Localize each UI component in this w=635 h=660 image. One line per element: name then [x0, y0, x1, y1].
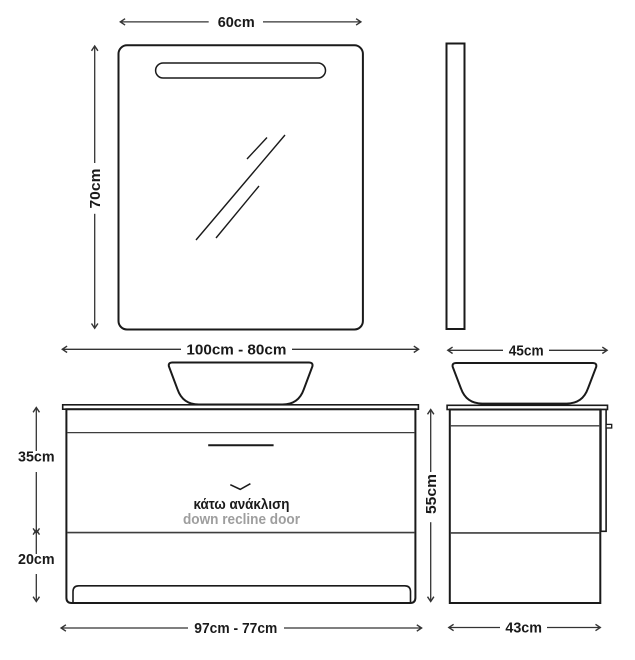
svg-text:100cm - 80cm: 100cm - 80cm	[186, 342, 286, 359]
svg-text:70cm: 70cm	[88, 168, 104, 208]
svg-text:55cm: 55cm	[424, 474, 440, 514]
svg-text:35cm: 35cm	[18, 450, 55, 466]
svg-text:43cm: 43cm	[505, 621, 542, 637]
svg-text:60cm: 60cm	[218, 15, 255, 31]
svg-text:20cm: 20cm	[18, 552, 55, 568]
svg-text:45cm: 45cm	[509, 344, 544, 360]
svg-text:97cm - 77cm: 97cm - 77cm	[194, 620, 277, 637]
svg-text:down recline door: down recline door	[183, 511, 300, 528]
